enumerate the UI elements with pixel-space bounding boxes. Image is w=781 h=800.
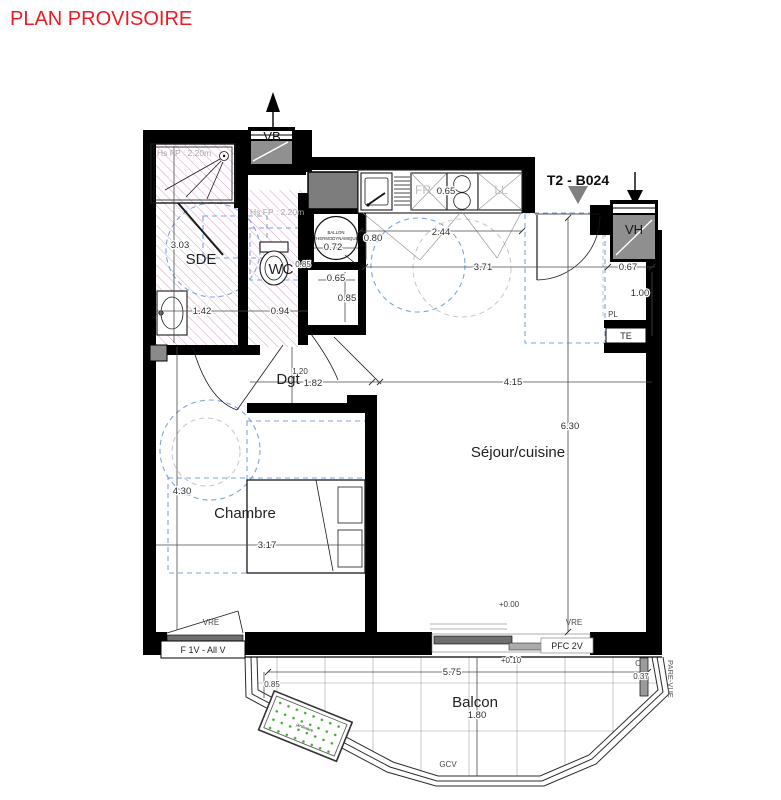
sejour-window-label: PFC 2V bbox=[551, 641, 583, 651]
vh-unit: VH bbox=[610, 172, 658, 262]
ceiling-height-sde: Hs FP : 2.20m bbox=[157, 148, 211, 158]
level-balcony: +0.10 bbox=[501, 656, 522, 665]
dim-entry-side: 0.67 bbox=[619, 262, 638, 273]
dim-nook-depth: 0.85 bbox=[338, 293, 357, 304]
vb-label: VB bbox=[263, 129, 280, 144]
vre-chambre-label: VRE bbox=[203, 618, 219, 627]
room-label-dgt: Dgt bbox=[276, 371, 300, 388]
room-label-wc: WC bbox=[269, 261, 294, 278]
dim-sde-height: 3.03 bbox=[171, 240, 190, 251]
dim-ballon-width: 0.72 bbox=[324, 242, 343, 253]
dim-chambre-width: 3.17 bbox=[258, 540, 277, 551]
dim-kitchen-width: 2.44 bbox=[432, 227, 451, 238]
washer-label: LL bbox=[494, 183, 508, 197]
dim-pare-vue: 0.37 bbox=[633, 672, 649, 681]
room-label-balcon: Balcon bbox=[452, 694, 498, 711]
level-interior: +0.00 bbox=[499, 600, 520, 609]
washbasin bbox=[157, 291, 187, 335]
kitchen-cabinet bbox=[308, 172, 358, 209]
sejour-window: VRE PFC 2V bbox=[430, 618, 593, 653]
dim-pl-depth: 1.00 bbox=[631, 288, 650, 299]
water-heater-label-2: THERMODYNAMIQUE bbox=[314, 236, 359, 241]
corner-mark: C bbox=[635, 659, 641, 668]
dim-sejour-width: 4.15 bbox=[504, 377, 523, 388]
electrical-panel-label: TE bbox=[620, 331, 632, 341]
planter: jardinière bbox=[259, 691, 353, 761]
dim-wc-width: 0.94 bbox=[271, 306, 290, 317]
gcv-label: GCV bbox=[439, 760, 457, 769]
water-heater: BALLON THERMODYNAMIQUE bbox=[314, 217, 359, 265]
dim-dgt-opening: 1.82 bbox=[304, 378, 323, 389]
dim-sejour-top: 3.71 bbox=[474, 262, 493, 273]
dim-balcon-edge: 0.85 bbox=[264, 680, 280, 689]
closet-label: PL bbox=[608, 310, 618, 319]
structural-post bbox=[150, 345, 167, 361]
dim-nook-width: 0.65 bbox=[327, 273, 346, 284]
dim-balcon-width: 5.75 bbox=[443, 667, 462, 678]
chambre-window: VRE F 1V - All V bbox=[161, 611, 245, 658]
washer-slot: LL bbox=[478, 173, 522, 210]
wc-door bbox=[311, 334, 381, 384]
room-label-chambre: Chambre bbox=[214, 505, 276, 522]
room-label-sde: SDE bbox=[186, 251, 217, 268]
dim-sde-width: 1.42 bbox=[193, 306, 212, 317]
floor-plan: PLAN PROVISOIRE bbox=[0, 0, 781, 800]
pare-vue-label: PARE-VUE bbox=[666, 660, 675, 698]
vh-label: VH bbox=[625, 222, 643, 237]
dim-ballon-depth: 0.80 bbox=[364, 233, 383, 244]
unit-label: T2 - B024 bbox=[547, 172, 609, 188]
chambre-window-label: F 1V - All V bbox=[180, 645, 225, 655]
dim-wc-depth: 0.85 bbox=[295, 260, 311, 269]
dim-balcon-depth: 1.80 bbox=[468, 710, 487, 721]
dim-hob-width: 0.65 bbox=[437, 186, 456, 197]
ceiling-height-wc: Hs FP : 2.20m bbox=[250, 207, 304, 217]
dim-sejour-height: 6.30 bbox=[561, 421, 580, 432]
dim-chambre-height: 4.30 bbox=[173, 486, 192, 497]
vb-arrow-icon bbox=[266, 92, 280, 112]
vb-unit: VB bbox=[248, 92, 295, 167]
fridge-label: FR bbox=[415, 183, 431, 197]
water-heater-label-1: BALLON bbox=[328, 230, 345, 235]
entrance-marker-icon bbox=[568, 186, 588, 204]
bed bbox=[247, 480, 365, 573]
room-label-sejour: Séjour/cuisine bbox=[471, 444, 565, 461]
page-title: PLAN PROVISOIRE bbox=[10, 8, 192, 30]
